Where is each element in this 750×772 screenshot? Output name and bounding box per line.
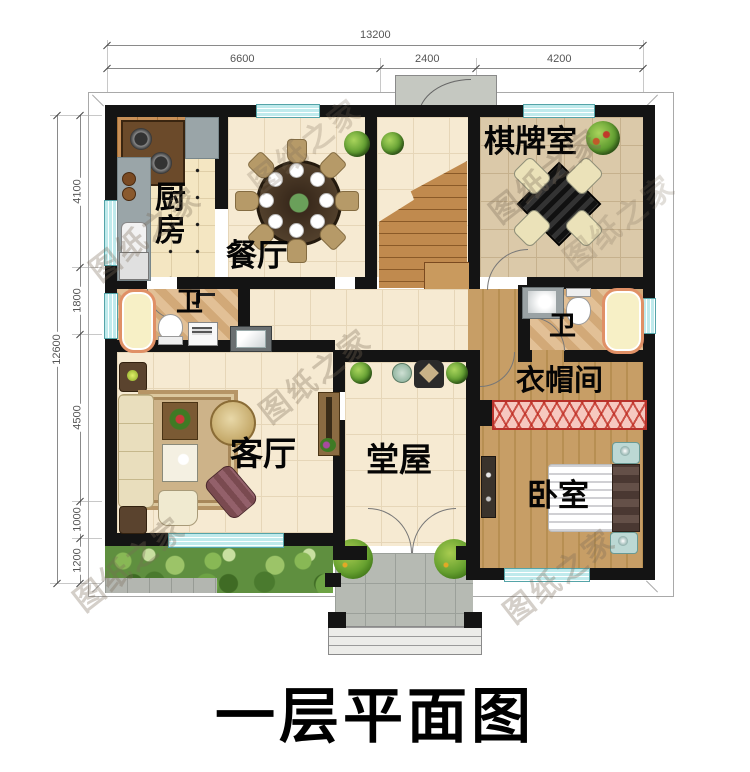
room-label-bath-left: 卫 (176, 288, 203, 316)
bathtub-left (119, 289, 156, 353)
wardrobe (492, 400, 647, 430)
room-label-hall: 堂屋 (366, 443, 432, 478)
kitchen-jar-2 (122, 187, 136, 201)
dim-top-seg2: 2400 (413, 54, 441, 65)
entry-steps (328, 626, 482, 655)
room-label-bedroom: 卧室 (527, 480, 589, 513)
bath-right-window (642, 298, 656, 334)
nightstand-lamp-1 (620, 446, 630, 456)
bedroom-dresser (481, 456, 496, 518)
toilet-right-tank (566, 288, 591, 297)
plant-stair-2 (381, 132, 404, 155)
dim-left-seg2: 1800 (73, 286, 84, 314)
stair-landing (424, 262, 469, 289)
dim-top-seg3: 4200 (545, 54, 573, 65)
room-label-bath-right: 卫 (549, 312, 576, 340)
hall-pot (392, 363, 412, 383)
kitchen-counter-right (185, 117, 219, 159)
sofa (118, 394, 154, 508)
dim-left-seg1: 4100 (73, 177, 84, 205)
shower-right-basin (528, 291, 556, 313)
stove-burner-2 (150, 152, 172, 174)
dim-left-seg4: 1000 (73, 505, 84, 533)
bath-left-window (104, 293, 118, 339)
flower-table (162, 402, 198, 440)
hall-cabinet-screen (236, 330, 266, 348)
plant-hall-2 (446, 362, 468, 384)
dim-left-total: 12600 (52, 332, 63, 367)
dim-top-total: 13200 (358, 30, 393, 41)
floor-plan-canvas: 13200 6600 2400 4200 12600 4100 1800 450… (0, 0, 750, 772)
room-label-living: 客厅 (230, 437, 296, 472)
washer-slot (192, 327, 212, 335)
decor-shelf-flowers (320, 438, 336, 452)
dim-top-seg1: 6600 (228, 54, 256, 65)
room-label-dining: 餐厅 (226, 240, 288, 273)
room-label-cloak: 衣帽间 (516, 366, 603, 396)
toilet-left-tank (158, 336, 183, 345)
bed-blanket (612, 464, 640, 532)
page-title: 一层平面图 (0, 668, 750, 755)
nightstand-lamp-2 (618, 536, 628, 546)
stove-burner-1 (130, 128, 152, 150)
dim-left-seg3: 4500 (73, 403, 84, 431)
kitchen-jar-1 (122, 172, 136, 186)
chess-window (523, 104, 595, 118)
lamp-1 (127, 370, 138, 381)
bathtub-right (602, 288, 644, 354)
coffee-table (162, 444, 198, 482)
